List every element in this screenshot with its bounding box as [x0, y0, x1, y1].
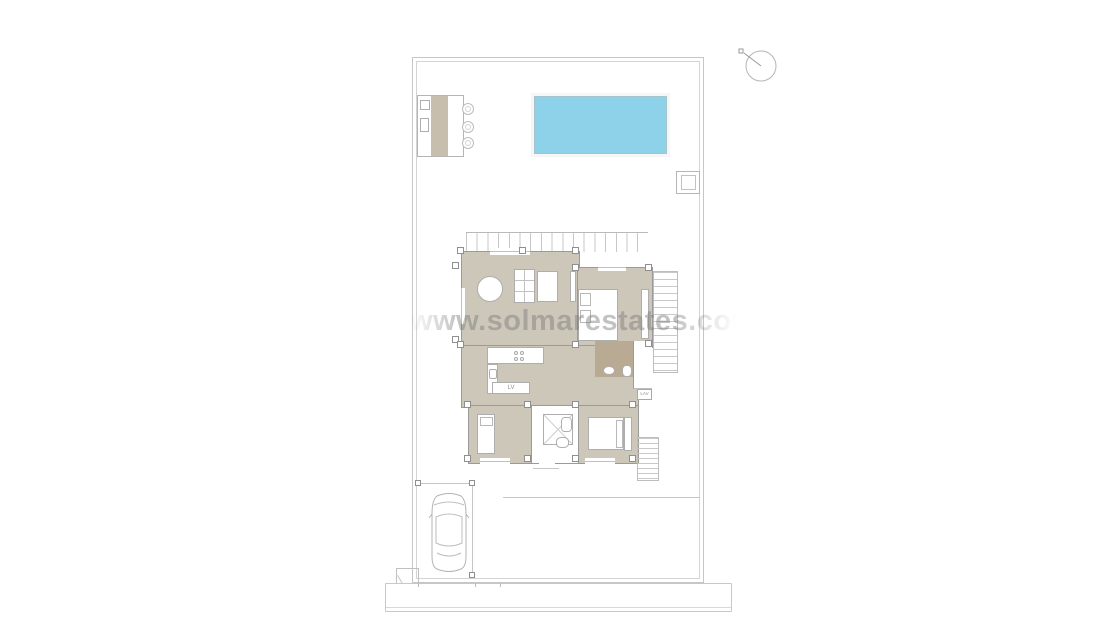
kitchen-island: LV [492, 382, 530, 394]
bar-stool [462, 121, 474, 133]
wall-pillar [572, 341, 579, 348]
bar-stool [462, 137, 474, 149]
sofa [514, 269, 535, 303]
wall-pillar [464, 455, 471, 462]
kitchen-counter [487, 347, 544, 364]
bed-2 [477, 414, 495, 454]
sidewalk-tick [418, 583, 419, 587]
wall-pillar [572, 401, 579, 408]
outdoor-sink [420, 100, 430, 110]
wall-pillar [452, 262, 459, 269]
burner-dot [514, 357, 518, 361]
parking-post [469, 480, 475, 486]
wall-pillar [629, 455, 636, 462]
utility-box-inner [681, 175, 696, 190]
pillow [480, 417, 493, 426]
gate-box [396, 568, 419, 584]
bathroom-sink [561, 417, 572, 432]
entrance-door-gap [539, 459, 555, 464]
compass-icon [732, 42, 778, 84]
sidewalk-tick [475, 583, 476, 587]
dishwasher-label: LV [493, 383, 529, 393]
pillow [616, 420, 623, 448]
wall-pillar [629, 401, 636, 408]
dining-table [477, 276, 503, 302]
terrace-edge [503, 497, 700, 498]
wall-pillar [457, 247, 464, 254]
wall-pillar [524, 401, 531, 408]
car-top-view [428, 490, 470, 574]
bed-3 [588, 417, 624, 450]
floor-plan-canvas: LV LAV www.solmarestates.com [0, 0, 1110, 626]
burner-dot [520, 351, 524, 355]
corridor [633, 341, 652, 389]
entrance-step [533, 468, 559, 469]
utility-box [676, 171, 700, 194]
wall-pillar [645, 264, 652, 271]
wardrobe-2 [624, 417, 632, 451]
wall-pillar [524, 455, 531, 462]
swimming-pool [534, 96, 667, 154]
wall-pillar [572, 264, 579, 271]
outdoor-kitchen-counter [431, 96, 448, 156]
window [585, 458, 615, 465]
window [480, 458, 510, 465]
kitchen-sink [489, 369, 497, 379]
sofa-2 [537, 271, 558, 302]
staircase-exterior [637, 437, 659, 481]
wall-pillar [519, 247, 526, 254]
sidewalk-tick [500, 583, 501, 587]
toilet [556, 437, 569, 448]
burner-dot [520, 357, 524, 361]
window [598, 264, 626, 271]
sidewalk [385, 583, 732, 612]
bar-stool [462, 103, 474, 115]
parking-post [415, 480, 421, 486]
parking-line-right [472, 483, 473, 577]
ensuite-toilet [622, 365, 632, 377]
parking-line-top [418, 483, 472, 484]
wall-pillar [645, 340, 652, 347]
tv-unit [570, 271, 576, 302]
ensuite-sink [603, 366, 615, 375]
wall-pillar [464, 401, 471, 408]
wall-pillar [457, 341, 464, 348]
outdoor-grill [420, 118, 429, 132]
wall-pillar [572, 247, 579, 254]
outdoor-kitchen [417, 95, 464, 157]
watermark: www.solmarestates.com [410, 305, 740, 338]
burner-dot [514, 351, 518, 355]
sidewalk-inner-line [386, 607, 731, 608]
wall-pillar [572, 455, 579, 462]
laundry-box: LAV [637, 389, 652, 400]
